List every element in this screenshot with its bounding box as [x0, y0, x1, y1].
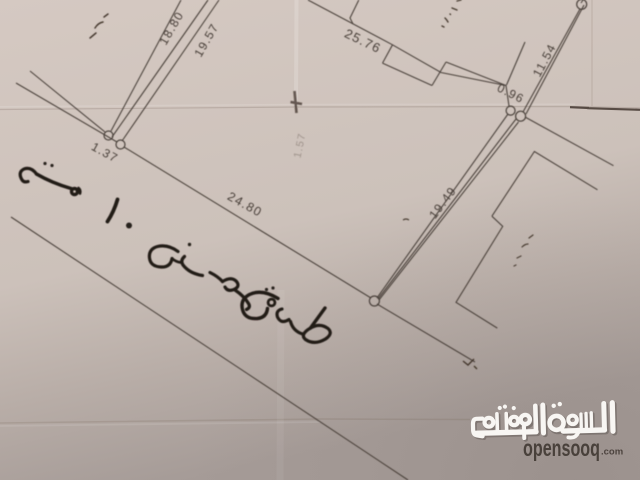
svg-text:.com: .com — [601, 447, 623, 458]
svg-text:opensooq: opensooq — [523, 435, 600, 461]
